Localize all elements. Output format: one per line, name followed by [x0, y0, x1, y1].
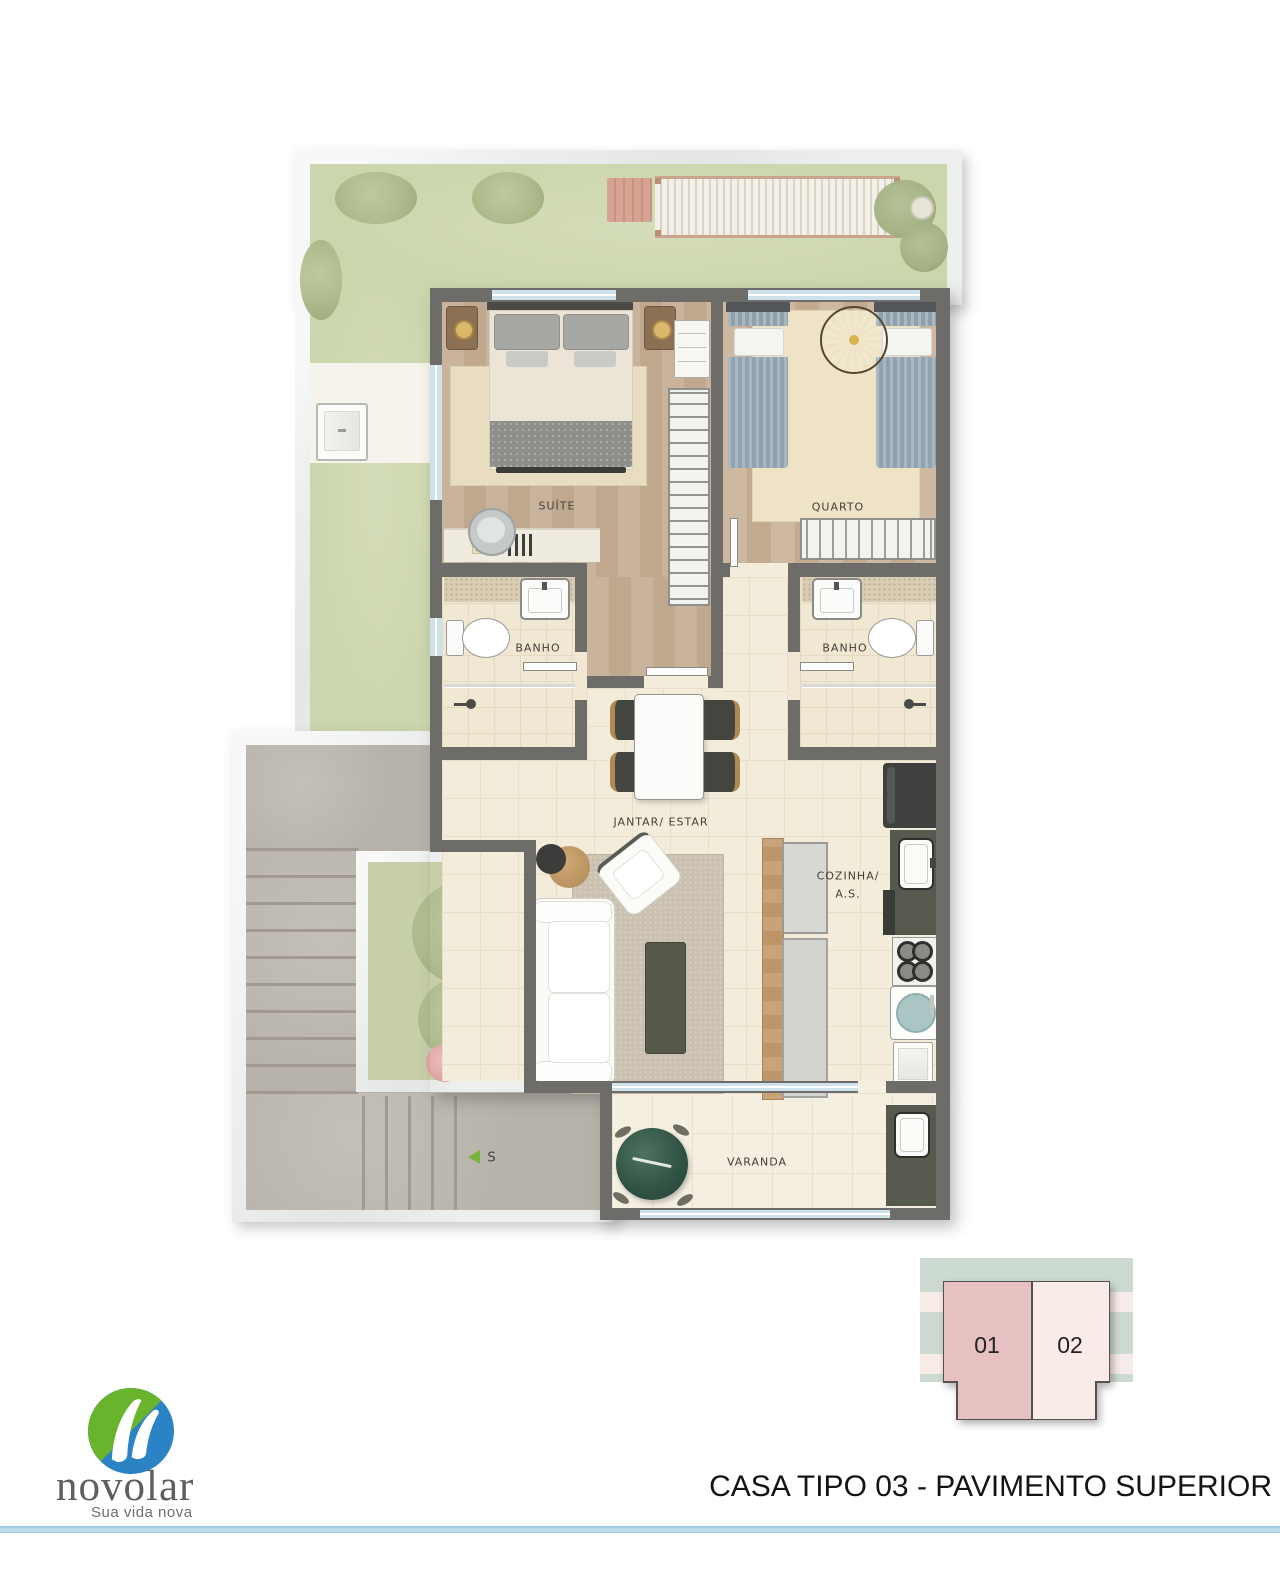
kitchen-cabinet — [883, 890, 895, 935]
novolar-logo-tagline: Sua vida nova — [91, 1504, 193, 1521]
key-plan-unit-02-label: 02 — [1057, 1332, 1083, 1358]
coffee-table — [645, 942, 686, 1054]
laundry-tank — [316, 403, 368, 461]
kitchen-sink — [898, 838, 934, 890]
banho1-toilet-bowl — [462, 618, 510, 658]
floor-plan-sheet: S SUÍTE — [0, 0, 1280, 1580]
door-leaf-banho1 — [523, 662, 577, 671]
suite-nightstand — [644, 306, 676, 350]
washing-machine — [890, 986, 938, 1040]
varanda-railing-glass — [640, 1210, 890, 1218]
wall-suite-banho1 — [430, 563, 587, 577]
room-label-cozinha-line2: A.S. — [835, 888, 860, 901]
wall-step — [430, 840, 536, 852]
quarto-wardrobe — [800, 518, 936, 560]
window-living-varanda — [612, 1083, 858, 1091]
door-gap-suite — [644, 676, 708, 688]
garden-bush — [472, 172, 544, 224]
stair-risers — [362, 1096, 462, 1210]
banho2-toilet-bowl — [868, 618, 916, 658]
varanda-sink — [894, 1112, 930, 1158]
door-gap-varanda — [858, 1081, 886, 1093]
sheet-title: CASA TIPO 03 - PAVIMENTO SUPERIOR — [709, 1470, 1272, 1504]
sliding-door-garden — [430, 365, 442, 500]
suite-closet — [668, 388, 710, 606]
suite-bed — [489, 310, 633, 470]
laundry-sink — [893, 1042, 933, 1086]
fridge — [883, 763, 936, 828]
banho2-toilet — [916, 620, 934, 656]
key-plan-unit-01-label: 01 — [974, 1332, 1000, 1358]
footer-accent-line — [0, 1526, 1280, 1533]
banho2-sink — [812, 578, 862, 620]
wall-banho2-bottom — [788, 747, 938, 760]
tv-console-panel — [782, 842, 828, 934]
door-gap-quarto — [730, 563, 788, 577]
wall-banho1-bottom — [430, 747, 587, 760]
kitchen-counter — [890, 892, 936, 935]
window — [492, 290, 616, 300]
window — [748, 290, 920, 300]
suite-dresser — [674, 320, 710, 378]
stairs-up-arrow-icon — [468, 1150, 480, 1164]
floor-lamp — [536, 844, 566, 874]
banho2-shower-head — [904, 699, 914, 709]
tv-console-panel — [782, 938, 828, 1098]
suite-vanity-basin — [468, 508, 516, 556]
room-label-jantar-estar: JANTAR/ ESTAR — [613, 816, 708, 829]
room-label-varanda: VARANDA — [727, 1156, 787, 1169]
door-leaf-banho2 — [800, 662, 854, 671]
banho1-shower-glass — [444, 684, 575, 687]
door-leaf-suite — [646, 667, 708, 676]
garden-tree — [900, 222, 948, 272]
sofa — [531, 898, 615, 1086]
wall-living-left — [524, 852, 536, 1093]
suite-nightstand — [446, 306, 478, 350]
room-label-banho2: BANHO — [822, 642, 867, 655]
wood-deck — [607, 178, 652, 222]
banho1-shower-head — [466, 699, 476, 709]
wall-suite-quarto — [711, 288, 723, 688]
pergola — [655, 176, 900, 238]
stair-landing — [246, 745, 430, 852]
door-leaf-quarto — [730, 518, 738, 567]
room-label-banho1: BANHO — [515, 642, 560, 655]
quarto-bed — [726, 300, 790, 470]
door-gap-banho2 — [788, 652, 800, 700]
banho1-sink — [520, 578, 570, 620]
key-plan-units: 01 02 — [943, 1281, 1110, 1420]
stair-treads — [246, 848, 358, 1106]
varanda-round-table — [616, 1128, 688, 1200]
tree-trunk — [910, 196, 934, 220]
room-label-quarto: QUARTO — [812, 501, 864, 514]
banho2-shower-glass — [802, 684, 936, 687]
garden-bush — [335, 172, 417, 224]
quarto-rattan-rug — [820, 306, 888, 374]
stairs-marker: S — [487, 1151, 496, 1166]
room-label-suite: SUÍTE — [539, 500, 576, 513]
door-gap-banho1 — [575, 652, 587, 700]
garden-lawn-left-strip — [310, 290, 432, 733]
banho2-shower-head — [912, 703, 926, 706]
garden-bush — [300, 240, 342, 320]
stove — [892, 937, 938, 986]
wall-varanda-left — [600, 1093, 612, 1220]
tv-console-wood — [762, 838, 784, 1100]
room-label-cozinha-line1: COZINHA/ — [817, 870, 880, 883]
window-banho1 — [430, 618, 442, 656]
dining-table — [634, 694, 704, 800]
